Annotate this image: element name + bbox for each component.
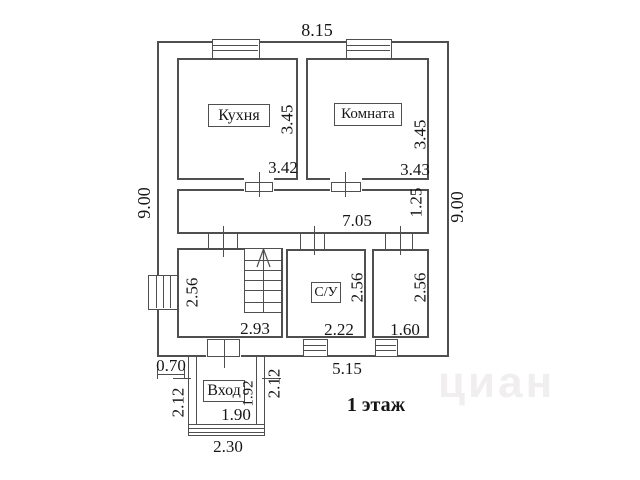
- window-pane-line: [170, 276, 171, 308]
- dim-porch-offset: 0.70: [141, 357, 201, 374]
- door-storage-tick: [400, 226, 401, 255]
- dim-porch-left-height: 2.12: [170, 373, 187, 433]
- porch-step: [188, 432, 265, 433]
- wc-label-text: С/У: [314, 285, 337, 301]
- dim-storage-height: 2.56: [412, 258, 429, 318]
- window-pane-line: [304, 350, 326, 351]
- stair-stringer: [263, 260, 264, 313]
- window-pane-line: [163, 276, 164, 308]
- porch-step: [188, 428, 265, 429]
- watermark: циан: [438, 358, 555, 408]
- dim-wc-width: 2.22: [309, 321, 369, 338]
- kitchen-label: Кухня: [208, 104, 270, 127]
- hallway: [177, 189, 429, 234]
- dim-overall-top: 8.15: [287, 21, 347, 39]
- floor-title: 1 этаж: [316, 394, 436, 417]
- window-pane-line: [347, 50, 390, 51]
- floor-plan: циан: [0, 0, 640, 480]
- entrance-label: Вход: [203, 380, 245, 402]
- window-wc-bottom: [303, 339, 328, 357]
- door-living-tick: [345, 172, 346, 197]
- entrance-label-text: Вход: [207, 382, 241, 400]
- door-storage: [385, 233, 413, 250]
- door-wc: [300, 233, 325, 250]
- dim-kitchen-height: 3.45: [279, 90, 296, 150]
- dim-hallway-width: 7.05: [327, 212, 387, 229]
- dim-porch-outer-width: 2.30: [198, 438, 258, 455]
- window-top-right: [346, 39, 392, 59]
- window-pane-line: [156, 276, 157, 308]
- wc-label: С/У: [311, 282, 341, 303]
- dim-kitchen-width: 3.42: [253, 159, 313, 176]
- dim-wc-height: 2.56: [349, 258, 366, 318]
- kitchen-label-text: Кухня: [218, 107, 259, 125]
- window-pane-line: [376, 345, 396, 346]
- dim-overall-bottom: 5.15: [317, 360, 377, 377]
- dim-storage-width: 1.60: [375, 321, 435, 338]
- dim-overall-right: 9.00: [448, 177, 466, 237]
- window-pane-line: [213, 50, 258, 51]
- dim-porch-inner-width: 1.90: [206, 406, 266, 423]
- window-left: [148, 275, 178, 310]
- window-pane-line: [376, 350, 396, 351]
- porch-step: [188, 424, 265, 425]
- dim-living-height: 3.45: [412, 105, 429, 165]
- window-storage-bottom: [375, 339, 398, 357]
- dim-overall-left: 9.00: [135, 173, 153, 233]
- living-label: Комната: [334, 103, 402, 126]
- dim-stair-room-width: 2.93: [225, 320, 285, 337]
- window-top-left: [212, 39, 260, 59]
- door-stair-room-tick: [223, 226, 224, 257]
- window-pane-line: [213, 45, 258, 46]
- window-pane-line: [347, 45, 390, 46]
- living-label-text: Комната: [341, 106, 395, 123]
- dim-hallway-height: 1.25: [408, 173, 425, 233]
- dim-stair-room-height: 2.56: [184, 263, 201, 323]
- door-wc-tick: [314, 226, 315, 255]
- dim-porch-right-height: 2.12: [266, 354, 283, 414]
- window-pane-line: [304, 345, 326, 346]
